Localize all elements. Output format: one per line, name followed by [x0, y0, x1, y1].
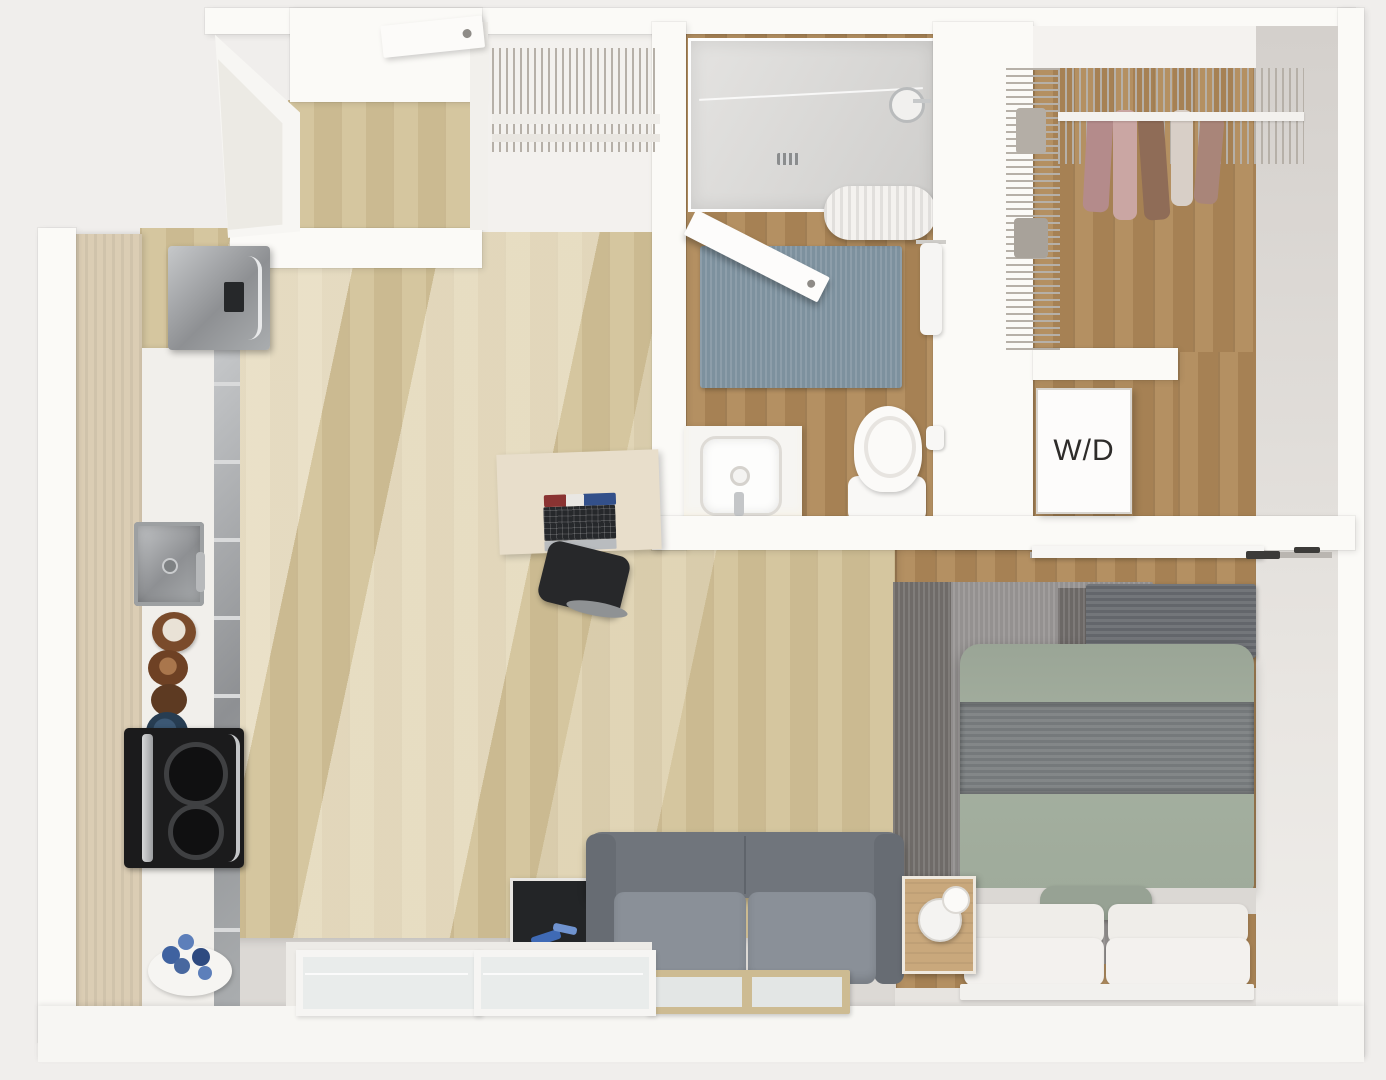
flower — [178, 934, 194, 950]
door-track-hardware — [1294, 547, 1320, 553]
apartment-floor-plan: W/D — [0, 0, 1386, 1080]
garment — [1113, 110, 1137, 220]
white-pillow — [964, 938, 1104, 986]
closet-laundry-divider — [1033, 348, 1178, 380]
blue-flowers — [158, 928, 222, 984]
kitchen-cabinet-fronts — [214, 348, 240, 1006]
refrigerator-handle — [244, 256, 262, 340]
shelf-rail — [492, 114, 660, 124]
washer-dryer-unit: W/D — [1036, 388, 1132, 514]
kitchen-sink — [134, 522, 204, 606]
desk-chair — [538, 548, 638, 626]
sliding-door-panel — [1032, 546, 1264, 558]
closet-wire-shelf-left — [1006, 68, 1060, 350]
flower — [192, 948, 210, 966]
window-panel-recess — [218, 52, 288, 230]
kitchen-faucet — [196, 552, 205, 592]
garment — [1082, 113, 1113, 212]
refrigerator-display — [224, 282, 244, 312]
sink-drain-dot — [730, 466, 750, 486]
coffee-table — [646, 970, 850, 1014]
bowl-brown-1 — [152, 612, 196, 652]
towel — [920, 243, 942, 335]
bottom-wall — [38, 1006, 1364, 1062]
closet-top-wall-face — [1033, 26, 1256, 68]
window-glass-line — [483, 973, 643, 975]
bottom-window — [296, 950, 482, 1016]
kitchen-tall-cabinet — [76, 234, 142, 1006]
bed — [958, 640, 1256, 1002]
entry-floor — [288, 100, 480, 232]
bathroom-vanity — [684, 426, 802, 520]
refrigerator — [168, 246, 270, 350]
flower — [198, 966, 212, 980]
toilet-bowl — [854, 406, 922, 492]
shower-drain — [777, 153, 799, 165]
bathroom-faucet — [734, 492, 744, 516]
door-handle — [806, 278, 817, 289]
knit-throw-blanket — [960, 702, 1254, 794]
flower — [174, 958, 190, 974]
toilet-paper-roll — [926, 426, 944, 450]
sofa-back-seam — [744, 836, 746, 894]
shelf-item — [1016, 108, 1046, 154]
garment — [1193, 115, 1225, 205]
cooktop — [124, 728, 244, 868]
shelf-rail — [492, 134, 660, 142]
hanging-clothes — [1085, 100, 1245, 240]
lamp-top — [942, 886, 970, 914]
burner-large — [164, 742, 228, 806]
entry-door-handle — [462, 29, 472, 39]
garment — [1171, 110, 1193, 206]
desk — [496, 449, 661, 555]
window-glass-line — [305, 973, 468, 975]
entry-closet-divider — [470, 22, 488, 230]
bed-frame-ledge — [960, 984, 1254, 1000]
door-track-hardware — [1246, 551, 1280, 559]
sofa-arm-right — [874, 834, 904, 984]
nightstand — [902, 876, 976, 974]
toilet-seat-ring — [864, 416, 916, 478]
left-wall — [38, 228, 76, 1042]
shelf-item — [1014, 218, 1048, 258]
bottom-window — [474, 950, 656, 1016]
shower-arm — [913, 99, 931, 103]
bowl-brown-2 — [148, 650, 188, 686]
closet-hanger-rail — [1058, 112, 1304, 121]
oven-handle-arc — [226, 734, 240, 862]
rolled-shower-curtain — [824, 186, 936, 240]
garment — [1137, 115, 1170, 221]
white-pillow — [1106, 938, 1250, 986]
laptop-keyboard — [543, 505, 616, 541]
south-wall-band — [652, 516, 1355, 550]
coat-closet-wire-shelf — [492, 48, 660, 152]
sink-drain — [162, 558, 178, 574]
coffee-table-glass — [654, 977, 742, 1007]
coffee-table-glass — [752, 977, 842, 1007]
shower-head — [889, 87, 925, 123]
closet-corridor-floor — [1178, 352, 1256, 518]
washer-dryer-label: W/D — [1038, 390, 1130, 512]
oven-door-handle — [142, 734, 153, 862]
burner-small — [168, 804, 224, 860]
